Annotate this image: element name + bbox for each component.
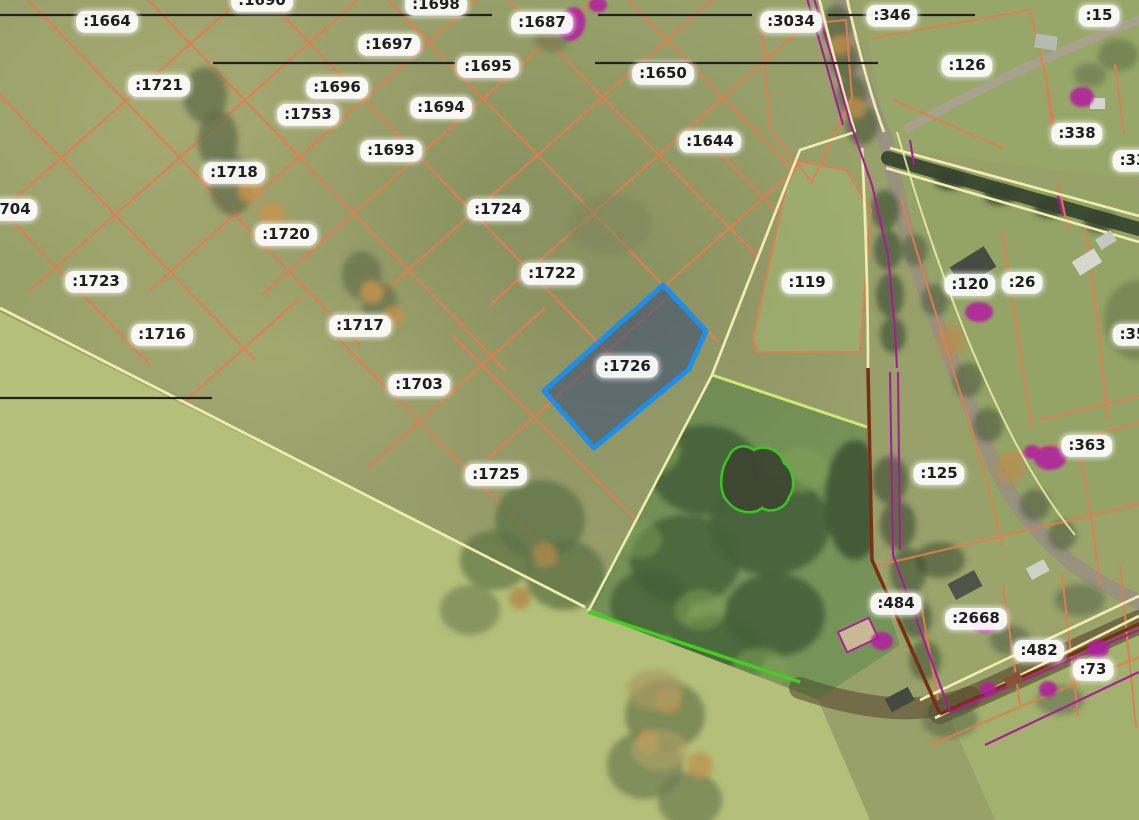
parcel-label-1753: :1753 — [277, 104, 339, 126]
parcel-label-1695: :1695 — [457, 56, 519, 78]
parcel-label-1720: :1720 — [255, 224, 317, 246]
parcel-label-1726: :1726 — [596, 356, 658, 378]
parcel-label-1698: :1698 — [405, 0, 467, 16]
parcel-label-35: :35 — [1113, 324, 1139, 346]
parcel-label-1693: :1693 — [360, 140, 422, 162]
parcel-label-73: :73 — [1073, 659, 1114, 681]
parcel-label-346: :346 — [866, 5, 917, 27]
parcel-label-119: :119 — [781, 272, 832, 294]
map-vector-layer — [0, 0, 1139, 820]
parcel-label-33: :33 — [1113, 150, 1139, 172]
map-canvas[interactable]: :1690:1698:1664:1687:3034:346:15:1697:16… — [0, 0, 1139, 820]
parcel-label-1721: :1721 — [128, 75, 190, 97]
parcel-label-338: :338 — [1051, 123, 1102, 145]
parcel-label-1722: :1722 — [521, 263, 583, 285]
parcel-label-1703: :1703 — [388, 374, 450, 396]
parcel-label-125: :125 — [913, 463, 964, 485]
parcel-label-1690: :1690 — [231, 0, 293, 12]
parcel-label-120: :120 — [944, 274, 995, 296]
parcel-label-3034: :3034 — [760, 11, 822, 33]
parcel-label-1664: :1664 — [76, 11, 138, 33]
parcel-label-1723: :1723 — [65, 271, 127, 293]
parcel-label-15: :15 — [1079, 5, 1120, 27]
parcel-label-2668: :2668 — [945, 608, 1007, 630]
parcel-label-1694: :1694 — [410, 97, 472, 119]
parcel-label-1717: :1717 — [329, 315, 391, 337]
parcel-label-1687: :1687 — [511, 12, 573, 34]
parcel-label-26: :26 — [1002, 272, 1043, 294]
parcel-label-1644: :1644 — [679, 131, 741, 153]
parcel-label-126: :126 — [941, 55, 992, 77]
parcel-label-704: 704 — [0, 199, 38, 221]
parcel-label-484: :484 — [870, 593, 921, 615]
parcel-label-363: :363 — [1061, 435, 1112, 457]
parcel-label-1716: :1716 — [131, 324, 193, 346]
parcel-label-1724: :1724 — [467, 199, 529, 221]
parcel-label-1650: :1650 — [632, 63, 694, 85]
parcel-label-1697: :1697 — [358, 34, 420, 56]
parcel-label-1725: :1725 — [465, 464, 527, 486]
parcel-label-1696: :1696 — [306, 77, 368, 99]
parcel-label-1718: :1718 — [203, 162, 265, 184]
parcel-label-482: :482 — [1013, 640, 1064, 662]
